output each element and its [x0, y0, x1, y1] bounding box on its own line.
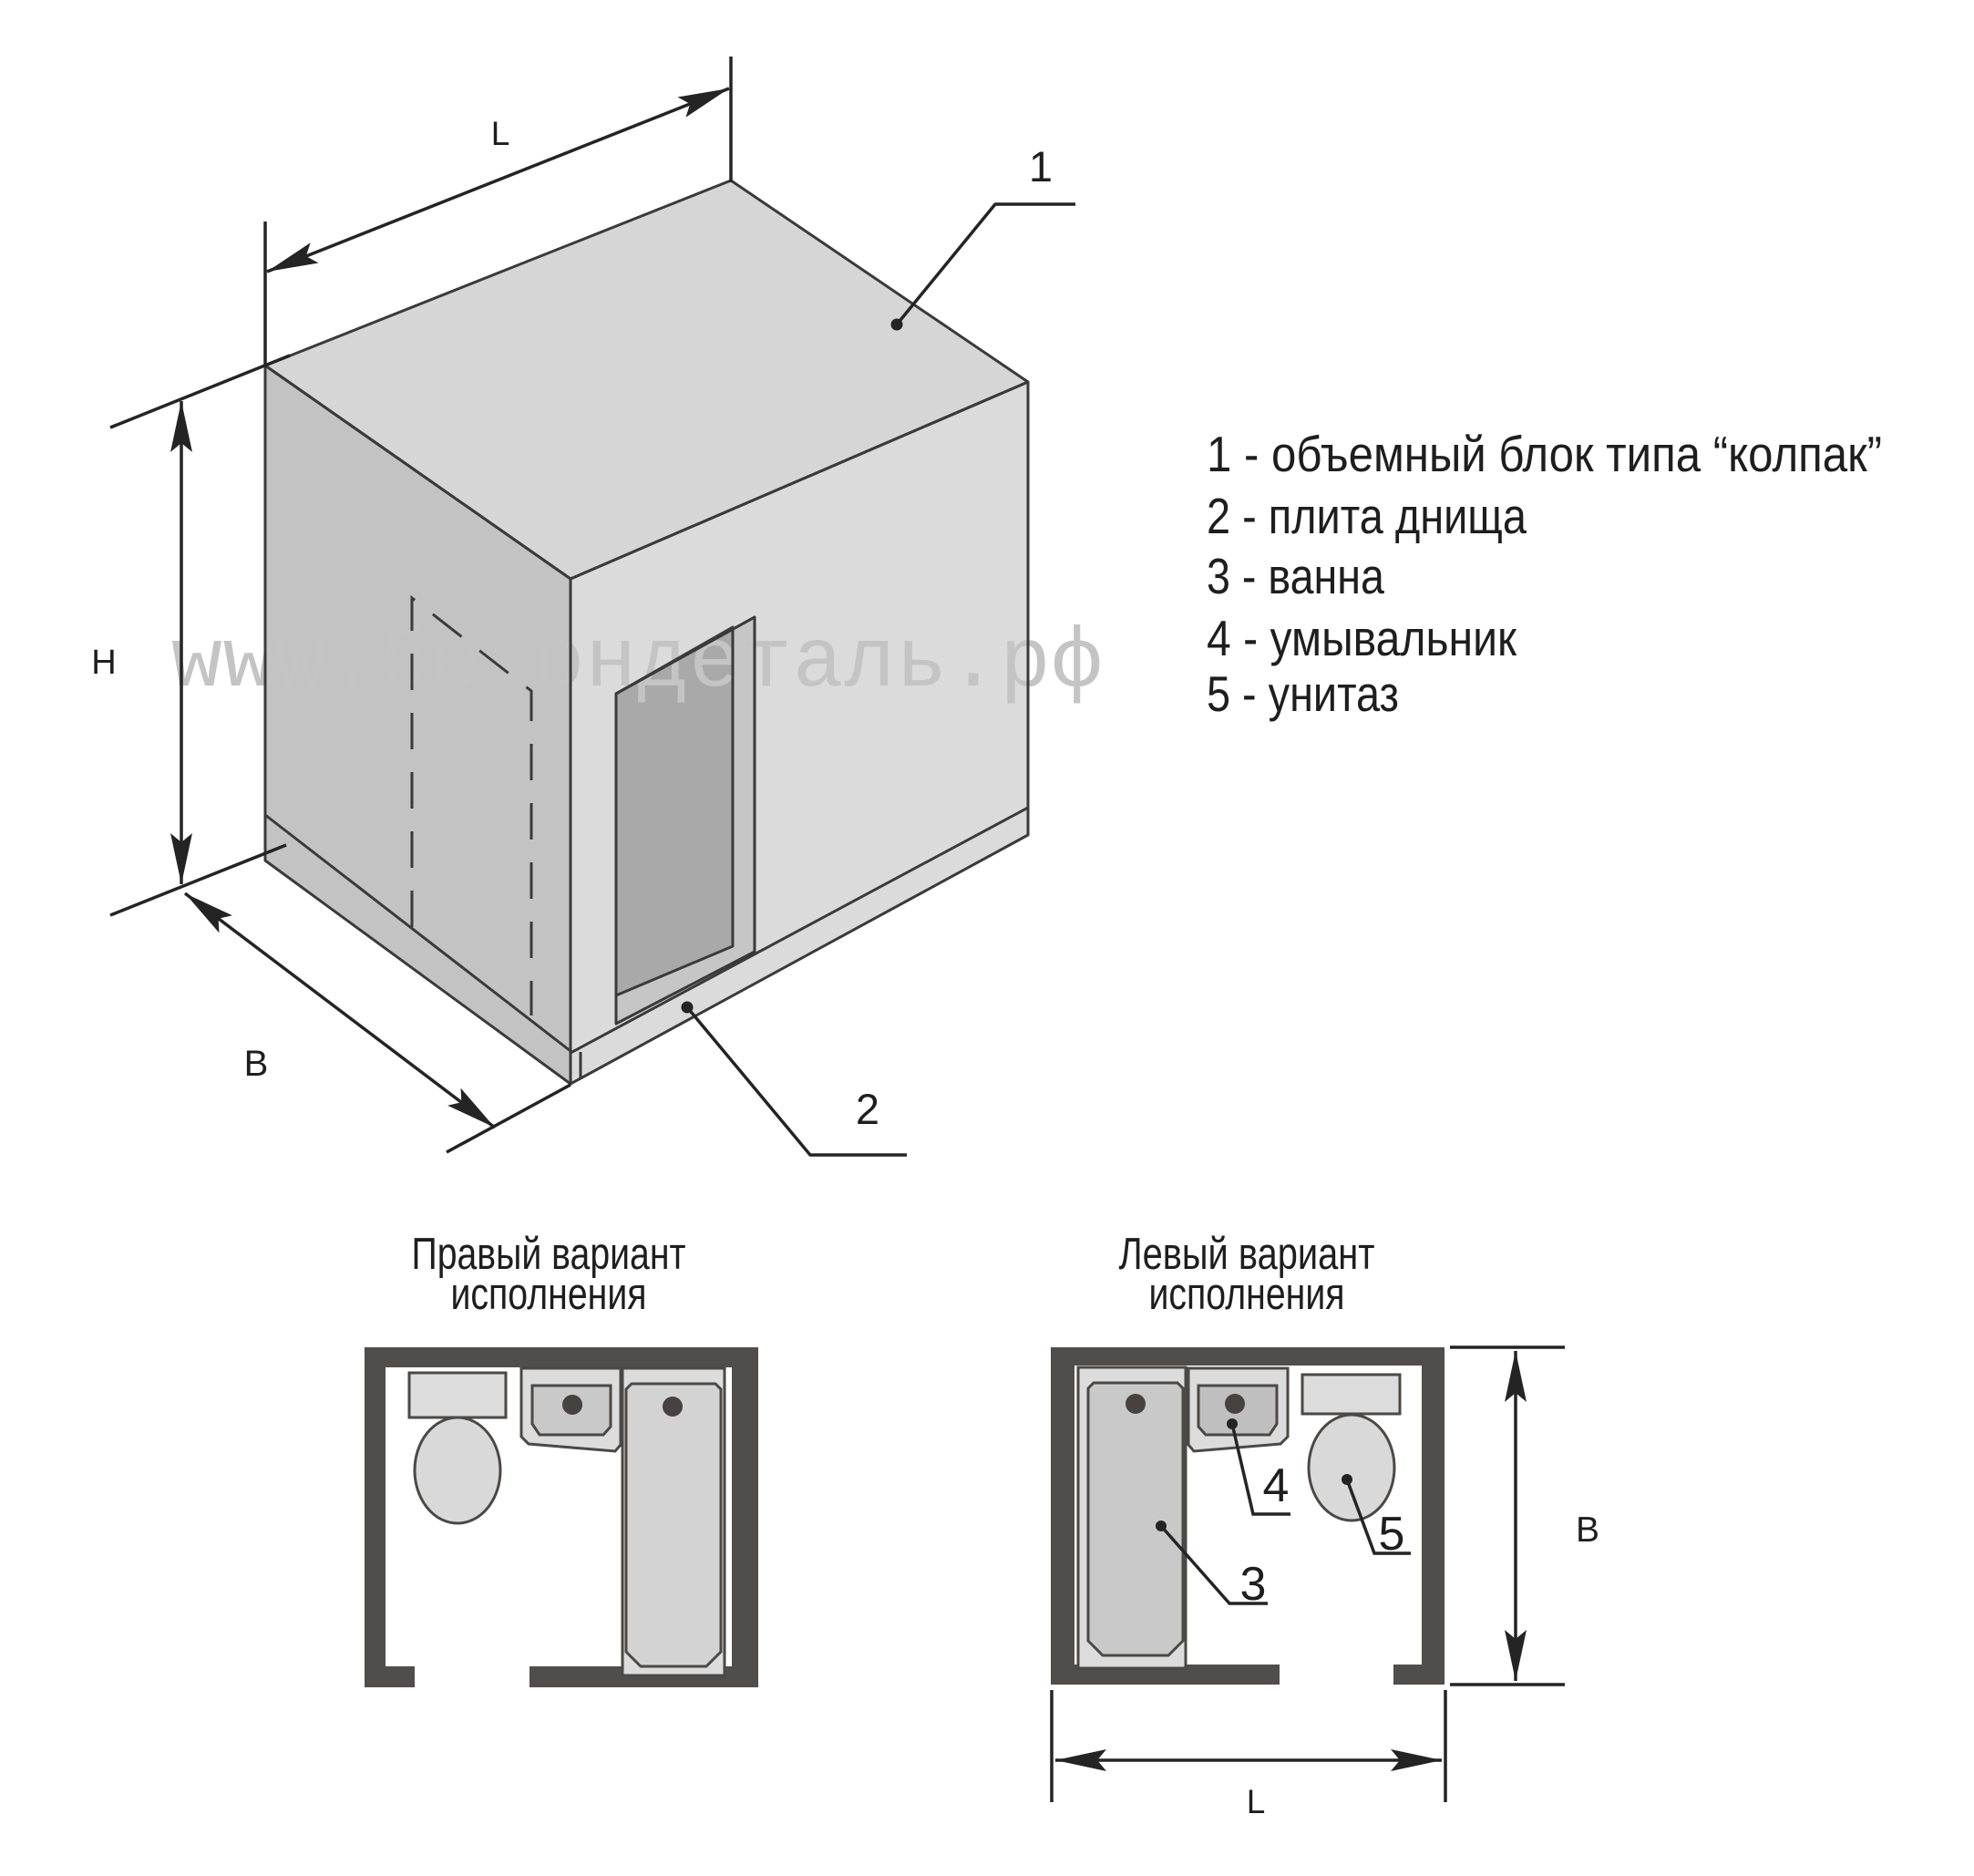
svg-text:L: L — [491, 115, 510, 152]
svg-text:5 - унитаз: 5 - унитаз — [1207, 665, 1399, 722]
svg-text:3 - ванна: 3 - ванна — [1207, 548, 1384, 604]
svg-text:1: 1 — [1029, 142, 1053, 191]
svg-text:3: 3 — [1240, 1558, 1267, 1611]
svg-text:4 - умывальник: 4 - умывальник — [1207, 610, 1517, 666]
svg-text:H: H — [91, 644, 116, 682]
svg-text:2 - плита днища: 2 - плита днища — [1207, 488, 1527, 544]
svg-text:1 - объемный блок типа “колпак: 1 - объемный блок типа “колпак” — [1207, 426, 1882, 482]
svg-text:исполнения: исполнения — [451, 1270, 647, 1319]
svg-text:исполнения: исполнения — [1149, 1270, 1345, 1319]
svg-text:5: 5 — [1379, 1508, 1405, 1561]
svg-text:B: B — [244, 1044, 269, 1084]
svg-text:www.бетондеталь.рф: www.бетондеталь.рф — [171, 615, 1104, 711]
svg-text:B: B — [1576, 1510, 1599, 1550]
svg-text:2: 2 — [856, 1085, 879, 1133]
svg-text:4: 4 — [1263, 1459, 1290, 1512]
svg-text:L: L — [1247, 1783, 1266, 1820]
